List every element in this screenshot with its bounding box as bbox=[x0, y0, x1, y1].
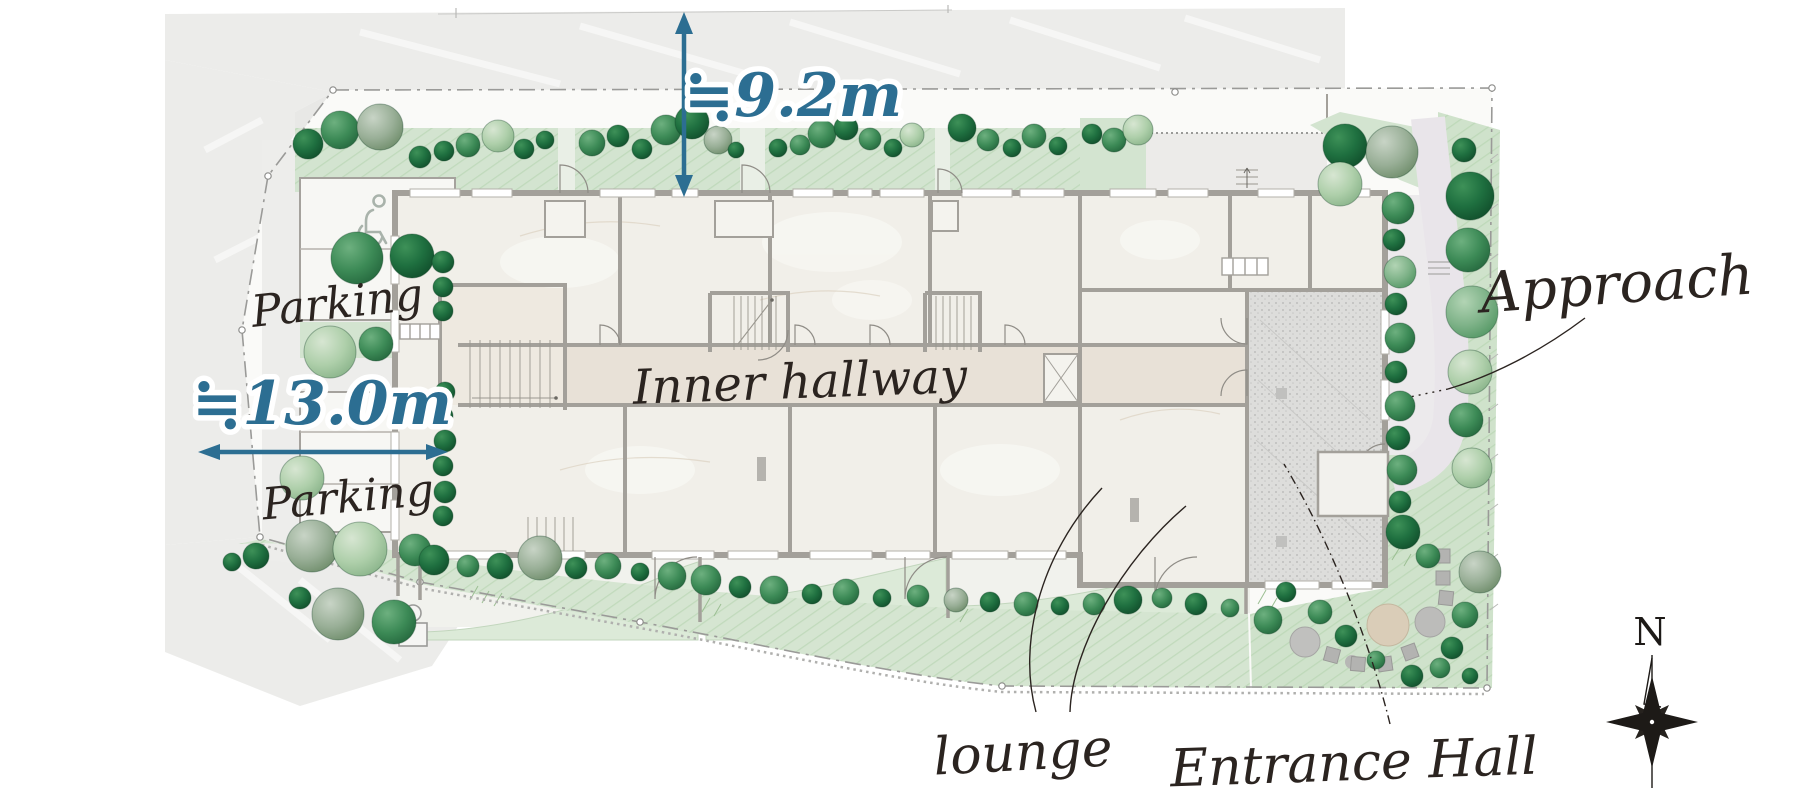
label-approach: Approach bbox=[1473, 243, 1755, 327]
dimension-width-label: ≒13.0m bbox=[192, 369, 452, 439]
entrance-porch bbox=[1318, 452, 1388, 516]
label-inner-hallway: Inner hallway bbox=[631, 348, 969, 416]
label-entrance-hall: Entrance Hall bbox=[1168, 727, 1539, 792]
elevator bbox=[1044, 354, 1078, 402]
compass-north-label: N bbox=[1633, 610, 1666, 654]
compass-rose-icon: N bbox=[1606, 610, 1698, 788]
dimension-depth-label: ≒9.2m bbox=[684, 61, 902, 131]
site-plan-figure: Parking Parking Inner hallway Approach l… bbox=[0, 0, 1800, 792]
label-lounge: lounge bbox=[932, 718, 1114, 787]
site-plan-svg: Parking Parking Inner hallway Approach l… bbox=[0, 0, 1800, 792]
